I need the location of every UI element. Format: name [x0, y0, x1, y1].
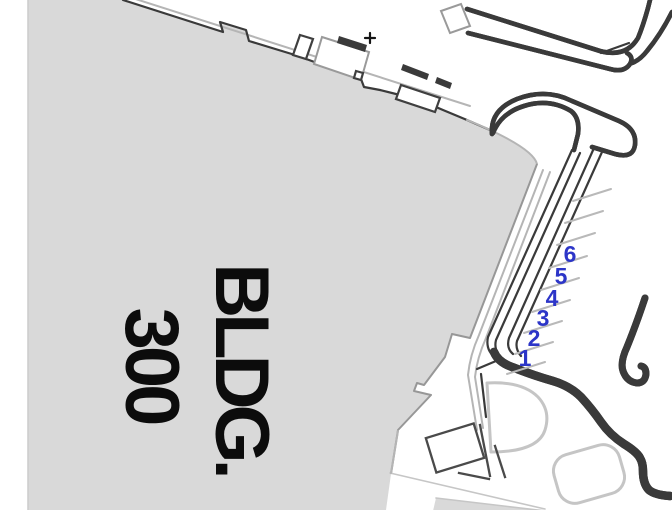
site-map-canvas: 1 2 3 4 5 6 BLDG. 300: [0, 0, 672, 510]
parking-space-number: 6: [564, 241, 577, 267]
site-plan-drawing: 1 2 3 4 5 6: [0, 0, 672, 510]
building-label-bldg: BLDG.: [203, 263, 279, 474]
entry-door: [354, 71, 363, 80]
building-label-300: 300: [113, 308, 189, 423]
